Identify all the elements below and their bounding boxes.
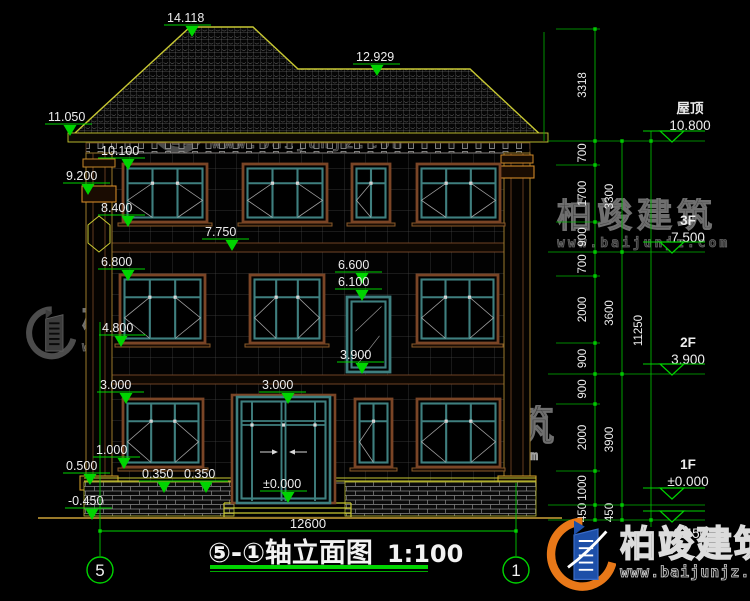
elevation-label: 3.900	[340, 348, 371, 362]
window-outer-frame	[417, 399, 500, 467]
pilaster-right	[498, 153, 536, 490]
elevation-label: 3.000	[262, 378, 293, 392]
plinth-left	[84, 482, 234, 516]
window-outer-frame	[243, 164, 327, 222]
dim-value: 2000	[577, 425, 589, 451]
elevation-label: 11.050	[48, 110, 85, 124]
floor-band-3f	[86, 243, 530, 252]
dim-value: 700	[577, 254, 589, 273]
window-sill	[245, 344, 329, 347]
elevation-label: 7.750	[205, 225, 236, 239]
elevation-label: 0.500	[66, 459, 97, 473]
dim-value: 1000	[577, 475, 589, 501]
window-sill	[347, 223, 395, 226]
window	[412, 275, 503, 347]
elevation-label: 8.400	[101, 201, 132, 215]
elevation-label: 0.350	[184, 467, 215, 481]
floor-band-2f	[86, 375, 530, 384]
mullion-dot	[250, 423, 253, 426]
brand-logo: 柏竣建筑 www.baijunjz.com	[544, 514, 750, 592]
mullion-dot	[313, 423, 316, 426]
window	[412, 399, 505, 471]
floor-label: 屋顶	[677, 101, 705, 116]
window-outer-frame	[417, 275, 498, 343]
dim-value: 3600	[604, 300, 616, 326]
mullion-dot	[282, 423, 285, 426]
window-sill	[118, 223, 212, 226]
brand-url: www.baijunjz.com	[620, 563, 750, 581]
dentil-band	[86, 143, 530, 153]
elevation-label: 6.800	[101, 255, 132, 269]
dim-value: 900	[577, 349, 589, 368]
roof	[75, 27, 543, 141]
floor-marker-triangle	[660, 488, 684, 499]
dim-value: 3900	[604, 427, 616, 453]
cad-drawing: 5 1 12600 331870017009007002000900900200…	[0, 0, 750, 601]
elevation-label: 10.100	[101, 144, 139, 158]
window-outer-frame	[250, 275, 324, 343]
window	[245, 275, 329, 347]
window-sill	[412, 223, 505, 226]
elevation-label: 12.929	[356, 50, 394, 64]
window-sill	[350, 468, 397, 471]
dim-value: 1700	[577, 181, 589, 207]
floor-elevation: ±0.000	[667, 474, 708, 489]
floor-label: 2F	[680, 335, 696, 350]
brand-logo-icon	[544, 514, 616, 592]
floor-marker-triangle	[660, 242, 684, 253]
dim-value: 11250	[633, 315, 645, 346]
dim-value: 900	[577, 379, 589, 398]
dim-value: 3300	[604, 184, 616, 210]
elevation-label: 3.000	[100, 378, 131, 392]
title-underline	[210, 565, 428, 569]
elevation-label: 6.100	[338, 275, 369, 289]
brand-name: 柏竣建筑	[620, 525, 750, 563]
floor-marker-triangle	[660, 131, 684, 142]
dim-value: 3318	[577, 72, 589, 98]
elevation-label: ±0.000	[263, 477, 301, 491]
floor-label: 3F	[680, 213, 696, 228]
window-sill	[412, 344, 503, 347]
elevation-label: 4.800	[102, 321, 133, 335]
elevation-label: 6.600	[338, 258, 369, 272]
drawing-scale: 1:100	[387, 540, 463, 568]
elevation-label: -0.450	[68, 494, 103, 508]
plinth-right	[345, 482, 536, 516]
dim-value: 700	[577, 143, 589, 162]
dim-value: 900	[577, 227, 589, 246]
window	[350, 399, 397, 471]
window-outer-frame	[417, 164, 500, 222]
floor-marker-triangle	[660, 364, 684, 375]
window	[115, 275, 210, 347]
window-sill	[238, 223, 332, 226]
dim-tick	[514, 529, 517, 532]
window-outer-frame	[123, 164, 207, 222]
floor-label: 1F	[680, 457, 696, 472]
axis-number-1: 1	[511, 561, 520, 580]
eave-fascia	[68, 133, 548, 142]
window	[412, 164, 505, 226]
cad-elevation-sheet: 柏竣建筑 www.baijunjz.com 柏竣建筑 www.baijunjz.…	[0, 0, 750, 601]
elevation-label: 0.350	[142, 467, 173, 481]
axis-number-5: 5	[95, 561, 104, 580]
window-sill	[115, 344, 210, 347]
elevation-label: 9.200	[66, 169, 97, 183]
dim-value: 2000	[577, 297, 589, 323]
entry-steps	[224, 503, 351, 518]
elevation-label: 14.118	[167, 11, 204, 25]
window	[347, 164, 395, 226]
elevation-label: 1.000	[96, 443, 127, 457]
dim-tick	[98, 529, 101, 532]
window	[238, 164, 332, 226]
title-underline-thin	[210, 571, 428, 572]
window	[118, 399, 208, 471]
bottom-dim-value: 12600	[290, 516, 326, 531]
window-sill	[412, 468, 505, 471]
